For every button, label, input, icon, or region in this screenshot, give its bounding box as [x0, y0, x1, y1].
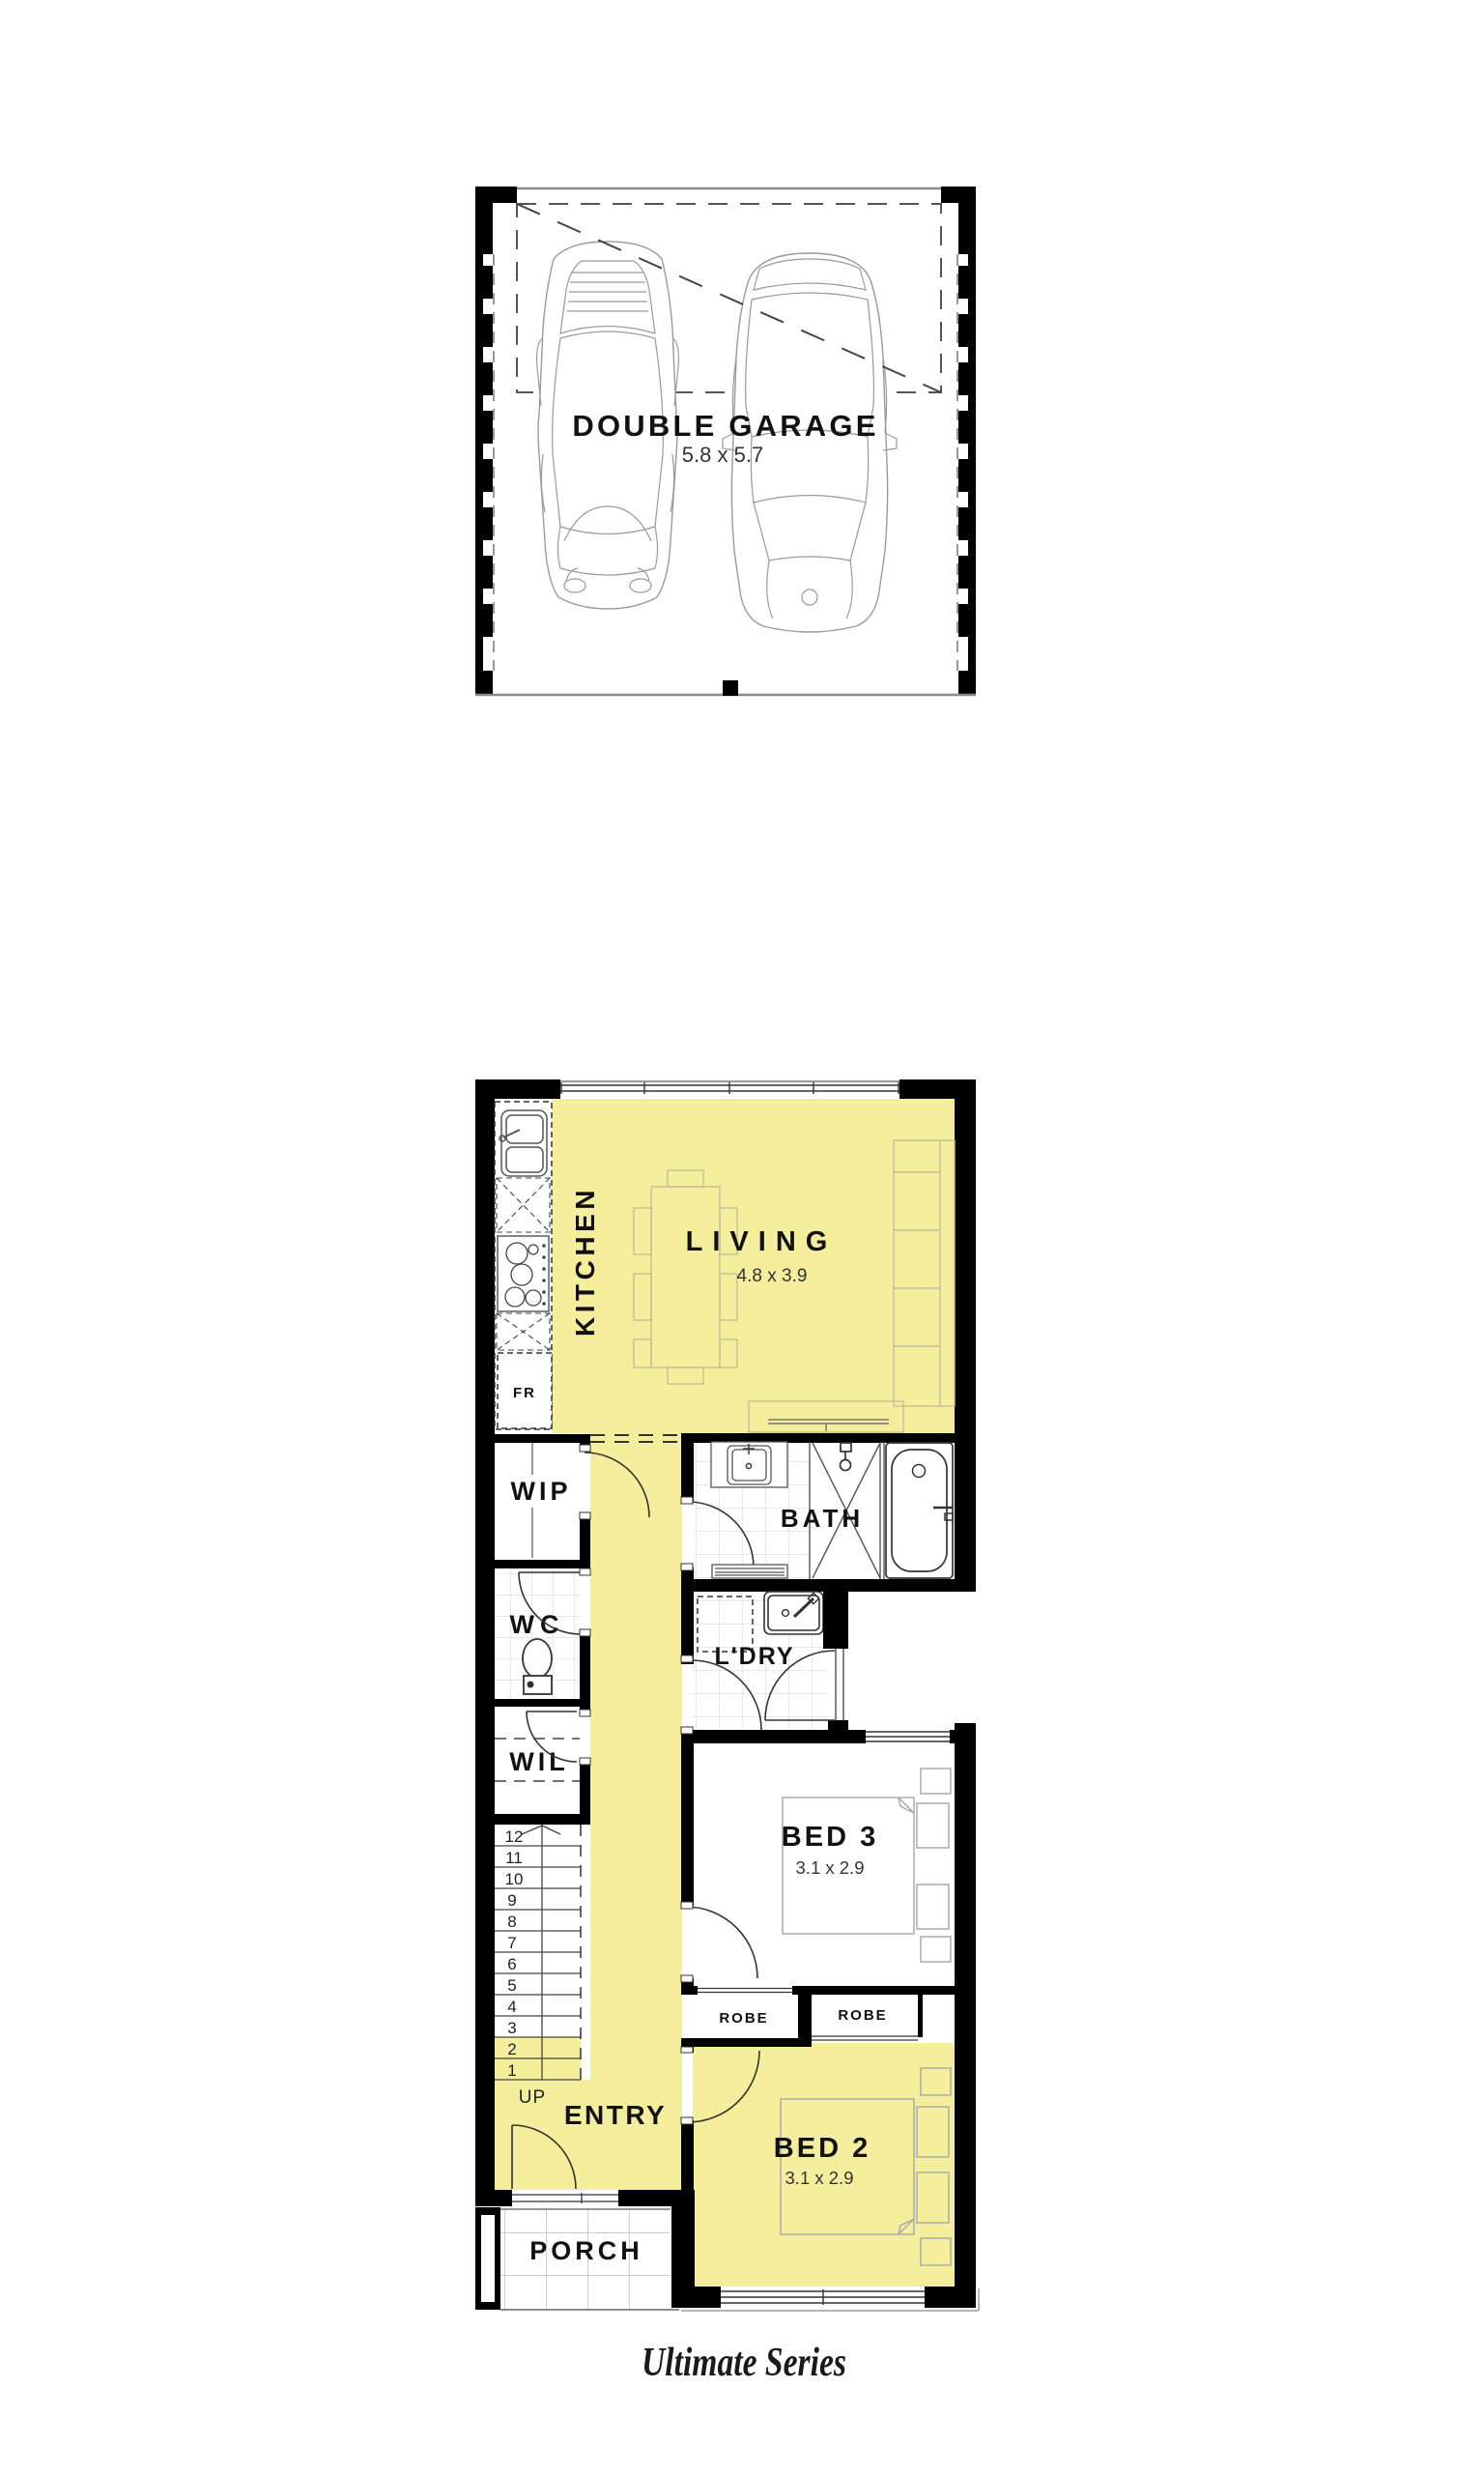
svg-text:11: 11: [505, 1849, 523, 1867]
svg-text:WC: WC: [510, 1610, 565, 1639]
svg-text:BATH: BATH: [781, 1504, 864, 1533]
svg-text:Ultimate Series: Ultimate Series: [642, 2341, 846, 2385]
svg-text:4: 4: [507, 1998, 516, 2016]
svg-text:ENTRY: ENTRY: [564, 2100, 667, 2130]
svg-text:5.8 x 5.7: 5.8 x 5.7: [682, 443, 763, 467]
svg-text:4.8 x 3.9: 4.8 x 3.9: [737, 1266, 808, 1286]
svg-text:3.1 x 2.9: 3.1 x 2.9: [785, 2168, 854, 2188]
svg-text:7: 7: [507, 1934, 516, 1952]
svg-text:L'DRY: L'DRY: [714, 1643, 794, 1670]
svg-text:10: 10: [505, 1870, 524, 1888]
svg-text:1: 1: [507, 2061, 516, 2080]
svg-text:12: 12: [505, 1827, 524, 1846]
svg-text:WIL: WIL: [509, 1747, 568, 1776]
svg-text:3: 3: [507, 2019, 516, 2037]
svg-text:ROBE: ROBE: [719, 2010, 768, 2027]
svg-text:WIP: WIP: [511, 1477, 572, 1506]
svg-text:9: 9: [507, 1891, 516, 1910]
svg-text:PORCH: PORCH: [529, 2236, 643, 2265]
svg-text:LIVING: LIVING: [686, 1226, 838, 1257]
svg-text:KITCHEN: KITCHEN: [570, 1186, 600, 1337]
svg-text:BED 3: BED 3: [782, 1822, 878, 1853]
svg-text:3.1 x 2.9: 3.1 x 2.9: [796, 1857, 865, 1878]
svg-text:UP: UP: [519, 2087, 546, 2108]
svg-text:FR: FR: [513, 1385, 536, 1401]
svg-text:DOUBLE GARAGE: DOUBLE GARAGE: [572, 409, 878, 443]
svg-text:2: 2: [507, 2040, 516, 2058]
svg-text:6: 6: [507, 1955, 516, 1973]
svg-text:ROBE: ROBE: [838, 2007, 887, 2024]
svg-text:BED 2: BED 2: [774, 2133, 870, 2164]
svg-text:8: 8: [507, 1913, 516, 1931]
svg-text:5: 5: [507, 1976, 516, 1995]
